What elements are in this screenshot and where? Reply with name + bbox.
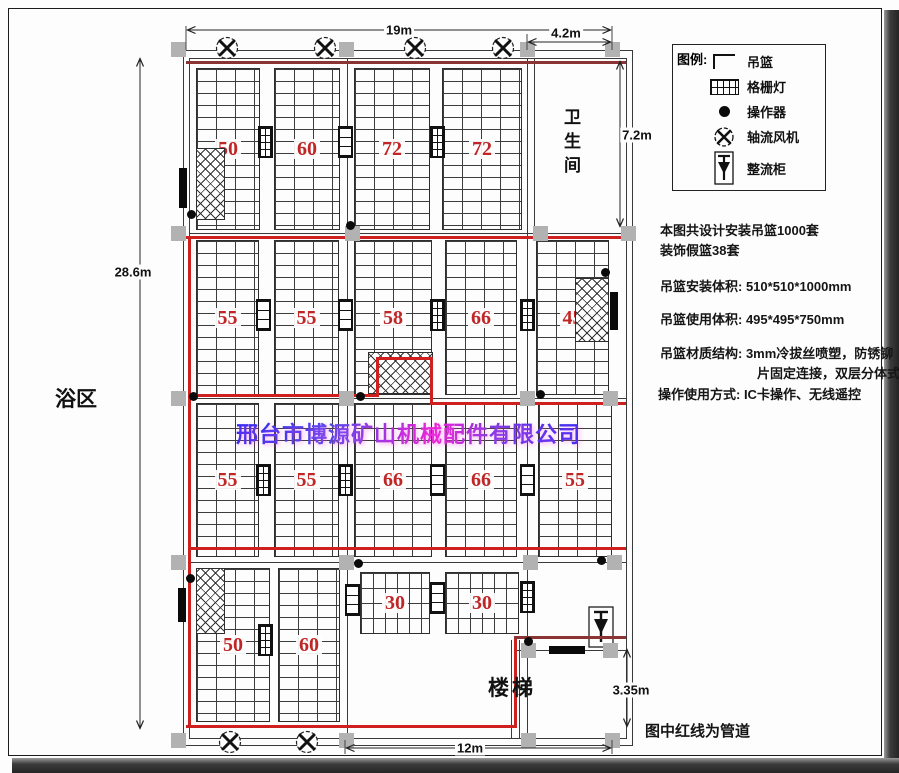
equipment-bar	[610, 292, 618, 330]
note-use-volume: 吊篮使用体积: 495*495*750mm	[660, 309, 844, 328]
structural-column	[339, 733, 354, 748]
grille-light-icon	[345, 584, 360, 616]
grille-light-icon	[430, 582, 445, 614]
rectifier-cabinet-icon	[588, 606, 614, 648]
structural-column	[171, 42, 186, 57]
wall-line	[183, 745, 633, 746]
dim-label-12m: 12m	[455, 741, 485, 756]
pipe-line	[189, 547, 626, 550]
legend-item-label: 整流柜	[747, 159, 786, 178]
pipe-line	[376, 357, 433, 360]
grille-light-icon	[430, 464, 445, 496]
block-basket-count: 55	[294, 470, 320, 490]
basket-block: 60	[274, 68, 340, 230]
operator-icon	[536, 390, 545, 399]
legend-item-label: 吊篮	[747, 52, 773, 71]
structural-column	[171, 555, 186, 570]
axial-fan-icon	[490, 35, 516, 61]
block-basket-count: 66	[380, 470, 406, 490]
basket-block: 55	[196, 240, 259, 395]
legend-item-axial-fan: 轴流风机	[675, 124, 823, 149]
pipe-line	[376, 357, 379, 397]
basket-block: 30	[360, 572, 430, 634]
block-basket-count: 55	[294, 308, 320, 328]
wall-line	[189, 233, 626, 234]
grille-light-icon	[258, 126, 273, 158]
block-basket-count: 55	[215, 308, 241, 328]
basket-block: 60	[278, 568, 340, 722]
grille-light-icon	[256, 299, 271, 331]
structural-column	[171, 733, 186, 748]
hatched-area	[575, 278, 609, 342]
dim-label-7-2m: 7.2m	[620, 128, 654, 143]
axial-fan-icon	[214, 35, 240, 61]
block-basket-count: 72	[469, 139, 495, 159]
block-basket-count: 50	[220, 635, 246, 655]
hatched-area	[196, 148, 225, 220]
operator-icon	[346, 221, 355, 230]
page-shadow-bottom	[12, 758, 899, 773]
floor-plan-image: 邢台市博源矿山机械配件有限公司 图例: 吊篮 格栅灯 操作器	[0, 0, 899, 773]
grille-light-icon	[258, 624, 273, 656]
grille-light-icon	[430, 299, 445, 331]
operator-icon	[189, 392, 198, 401]
structural-column	[339, 391, 354, 406]
grille-light-icon	[256, 464, 271, 496]
block-basket-count: 55	[215, 470, 241, 490]
block-basket-count: 58	[380, 308, 406, 328]
operator-icon	[187, 210, 196, 219]
note-total-baskets: 本图共设计安装吊篮1000套	[660, 220, 819, 239]
basket-block: 72	[442, 68, 522, 230]
wall-line	[189, 398, 626, 399]
note-install-volume: 吊篮安装体积: 510*510*1000mm	[660, 276, 851, 295]
basket-block: 30	[445, 572, 519, 634]
structural-column	[339, 42, 354, 57]
wall-line	[632, 50, 633, 746]
basket-block: 72	[354, 68, 430, 230]
wall-line	[626, 58, 627, 739]
structural-column	[521, 733, 536, 748]
equipment-bar	[179, 168, 187, 208]
legend-item-label: 操作器	[747, 102, 786, 121]
operator-icon	[186, 574, 195, 583]
page-shadow-right	[884, 10, 899, 773]
basket-icon	[713, 54, 735, 69]
block-basket-count: 60	[294, 139, 320, 159]
operator-icon	[719, 106, 730, 117]
legend-box: 图例: 吊篮 格栅灯 操作器 轴流风机	[672, 44, 826, 191]
axial-fan-icon	[713, 126, 735, 148]
rectifier-cabinet-icon	[714, 151, 734, 185]
structural-column	[621, 226, 636, 241]
hatched-area	[196, 568, 225, 634]
wall-line	[189, 562, 626, 563]
structural-column	[605, 42, 620, 57]
pipe-line	[188, 236, 191, 727]
grille-light-icon	[338, 126, 353, 158]
note-red-line-pipes: 图中红线为管道	[645, 720, 750, 741]
dim-label-4-2m: 4.2m	[549, 26, 583, 41]
block-basket-count: 30	[382, 593, 408, 613]
pipe-line	[430, 357, 433, 405]
legend-item-grille-light: 格栅灯	[675, 74, 823, 99]
operator-icon	[356, 392, 365, 401]
grille-light-icon	[338, 299, 353, 331]
grille-light-icon	[710, 79, 739, 95]
structural-column	[603, 643, 618, 658]
room-label-stairs: 楼梯	[488, 672, 536, 702]
pipe-line	[186, 725, 517, 728]
dim-label-28-6m: 28.6m	[113, 265, 154, 280]
grille-light-icon	[430, 126, 445, 158]
structural-column	[523, 555, 538, 570]
dim-label-19m: 19m	[384, 23, 414, 38]
note-operation: 操作使用方式: IC卡操作、无线遥控	[658, 384, 861, 403]
block-basket-count: 66	[468, 470, 494, 490]
note-decor-baskets: 装饰假篮38套	[660, 240, 739, 259]
structural-column	[605, 733, 620, 748]
structural-column	[533, 226, 548, 241]
equipment-bar	[178, 588, 186, 622]
grille-light-icon	[520, 464, 535, 496]
room-label-bathroom: 卫生间	[558, 108, 583, 180]
note-material-1: 吊篮材质结构: 3mm冷拔丝喷塑，防锈铆	[660, 343, 893, 362]
operator-icon	[524, 637, 533, 646]
structural-column	[520, 42, 535, 57]
block-basket-count: 55	[562, 470, 588, 490]
structural-column	[603, 391, 618, 406]
legend-item-label: 格栅灯	[747, 77, 786, 96]
pipe-line	[186, 236, 626, 239]
dim-label-3-35m: 3.35m	[611, 683, 652, 698]
operator-icon	[354, 559, 363, 568]
note-material-2: 片固定连接，双层分体式	[757, 363, 899, 382]
legend-item-basket: 吊篮	[675, 49, 823, 74]
wall-line	[189, 738, 626, 739]
grille-light-icon	[338, 464, 353, 496]
block-basket-count: 66	[468, 308, 494, 328]
grille-light-icon	[520, 581, 535, 613]
block-basket-count: 30	[469, 593, 495, 613]
legend-item-rectifier: 整流柜	[675, 149, 823, 187]
pipe-line	[186, 61, 626, 64]
structural-column	[607, 555, 622, 570]
operator-icon	[597, 556, 606, 565]
axial-fan-icon	[217, 729, 243, 755]
basket-block: 66	[445, 240, 517, 395]
wall-line	[534, 58, 535, 234]
equipment-bar	[549, 646, 585, 654]
structural-column	[171, 226, 186, 241]
block-basket-count: 60	[296, 635, 322, 655]
company-watermark: 邢台市博源矿山机械配件有限公司	[236, 417, 581, 449]
structural-column	[520, 391, 535, 406]
axial-fan-icon	[312, 35, 338, 61]
grille-light-icon	[520, 299, 535, 331]
basket-block: 55	[274, 240, 339, 395]
structural-column	[339, 555, 354, 570]
axial-fan-icon	[294, 729, 320, 755]
structural-column	[171, 391, 186, 406]
operator-icon	[601, 268, 610, 277]
room-label-bath-area: 浴区	[55, 383, 97, 413]
legend-items: 吊篮 格栅灯 操作器 轴流风机	[675, 49, 823, 187]
legend-item-operator: 操作器	[675, 99, 823, 124]
axial-fan-icon	[402, 35, 428, 61]
legend-item-label: 轴流风机	[747, 127, 799, 146]
block-basket-count: 72	[379, 139, 405, 159]
